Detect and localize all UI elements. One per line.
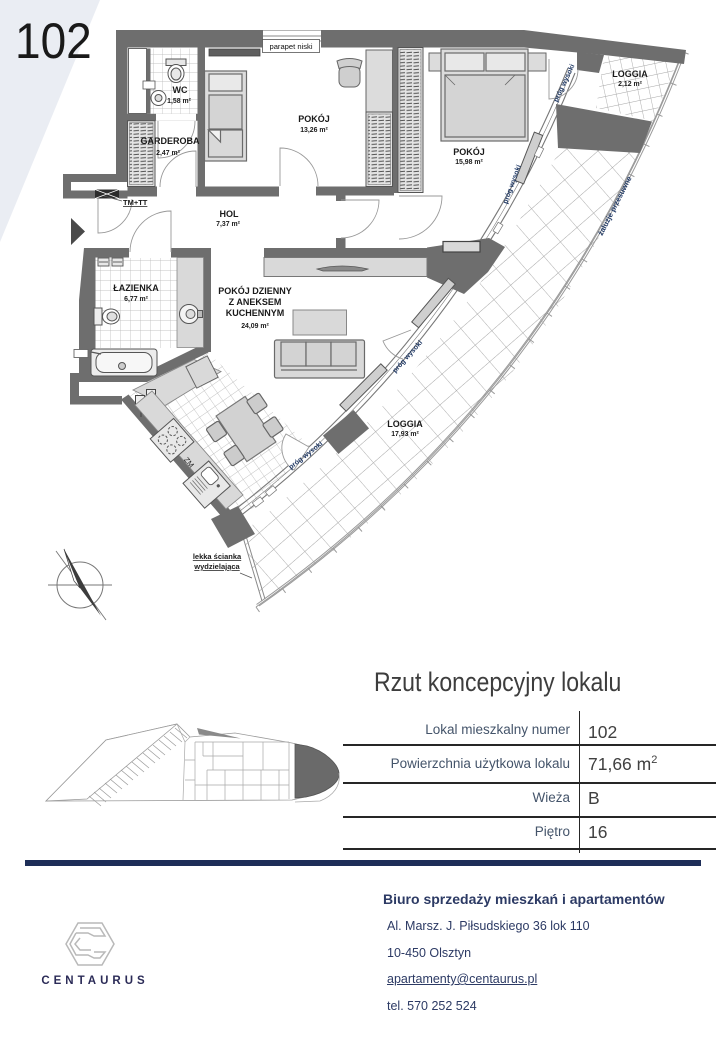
svg-text:POKÓJ: POKÓJ xyxy=(298,113,330,124)
svg-text:POKÓJ: POKÓJ xyxy=(453,146,485,157)
svg-text:LOGGIA: LOGGIA xyxy=(387,419,423,429)
svg-text:ŁAZIENKA: ŁAZIENKA xyxy=(113,283,159,293)
svg-text:HOL: HOL xyxy=(220,209,240,219)
svg-text:1,58 m²: 1,58 m² xyxy=(167,98,191,105)
svg-text:TM+TT: TM+TT xyxy=(123,198,148,207)
svg-text:Z ANEKSEM: Z ANEKSEM xyxy=(229,297,282,307)
svg-text:17,93 m²: 17,93 m² xyxy=(391,431,419,438)
svg-text:wydzielająca: wydzielająca xyxy=(193,562,240,571)
svg-text:WC: WC xyxy=(173,85,188,95)
svg-text:6,77 m²: 6,77 m² xyxy=(124,296,148,303)
svg-text:lekka ścianka: lekka ścianka xyxy=(193,552,242,561)
svg-text:2,12 m²: 2,12 m² xyxy=(618,81,642,88)
svg-text:POKÓJ DZIENNY: POKÓJ DZIENNY xyxy=(218,285,292,296)
svg-text:2,47 m²: 2,47 m² xyxy=(156,150,180,157)
svg-text:13,26 m²: 13,26 m² xyxy=(300,127,328,134)
svg-text:GARDEROBA: GARDEROBA xyxy=(140,136,200,146)
svg-text:parapet niski: parapet niski xyxy=(269,42,312,51)
svg-text:KUCHENNYM: KUCHENNYM xyxy=(226,308,285,318)
svg-text:15,98 m²: 15,98 m² xyxy=(455,159,483,166)
svg-text:7,37 m²: 7,37 m² xyxy=(216,221,240,228)
svg-text:LOGGIA: LOGGIA xyxy=(612,69,648,79)
svg-text:24,09 m²: 24,09 m² xyxy=(241,323,269,330)
